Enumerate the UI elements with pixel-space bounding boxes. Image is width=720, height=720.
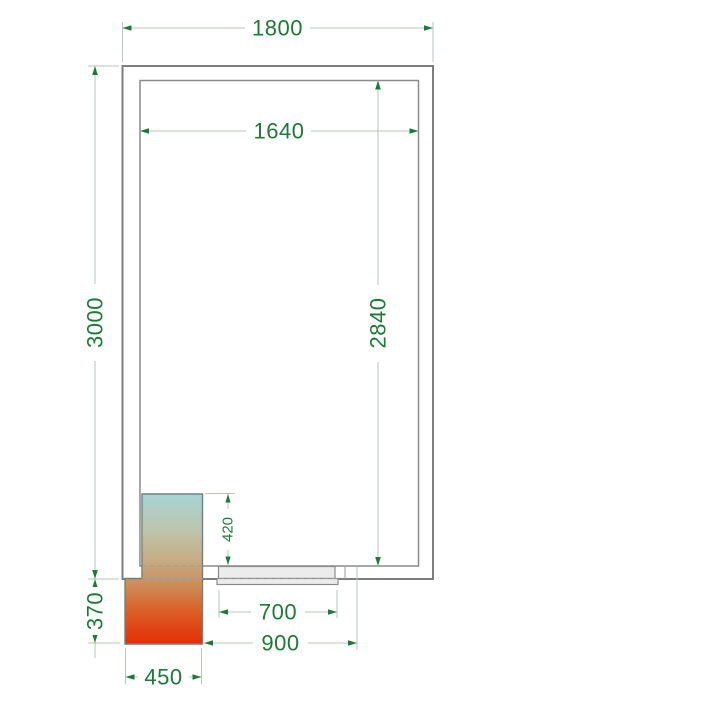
dim-arrow-left: [204, 640, 213, 646]
dim-label-1640: 1640: [254, 119, 305, 144]
dim-arrow-left: [126, 674, 135, 680]
dim-arrow-left: [219, 609, 228, 615]
cold-room-plan-svg: 1800 1640 3000 2840 420: [0, 0, 720, 720]
dim-unit-outside-protrusion: 370: [83, 579, 121, 658]
dim-unit-width: 450: [126, 648, 202, 690]
dim-label-3000: 3000: [83, 297, 108, 348]
dim-arrow-left: [123, 25, 132, 31]
dim-label-1800: 1800: [252, 16, 303, 41]
dim-label-2840: 2840: [366, 298, 391, 349]
door-leaf: [217, 579, 338, 585]
technical-drawing-canvas: 1800 1640 3000 2840 420: [0, 0, 720, 720]
dim-arrow-right: [424, 25, 433, 31]
dim-arrow-bottom: [92, 570, 98, 579]
dim-outer-width: 1800: [123, 16, 434, 63]
dim-label-450: 450: [144, 665, 182, 690]
dim-arrow-bottom: [92, 634, 98, 643]
door-frame: [219, 567, 336, 579]
dim-arrow-top: [92, 66, 98, 75]
dim-label-420: 420: [220, 517, 237, 542]
dim-arrow-right: [348, 640, 357, 646]
dim-label-900: 900: [261, 631, 299, 656]
dim-door-width: 700: [219, 590, 337, 625]
dim-arrow-right: [328, 609, 337, 615]
dim-arrow-right: [193, 674, 202, 680]
dim-label-370: 370: [83, 592, 108, 630]
dim-label-700: 700: [259, 600, 297, 625]
dim-arrow-top: [92, 579, 98, 588]
dim-outer-length: 3000: [83, 66, 120, 579]
